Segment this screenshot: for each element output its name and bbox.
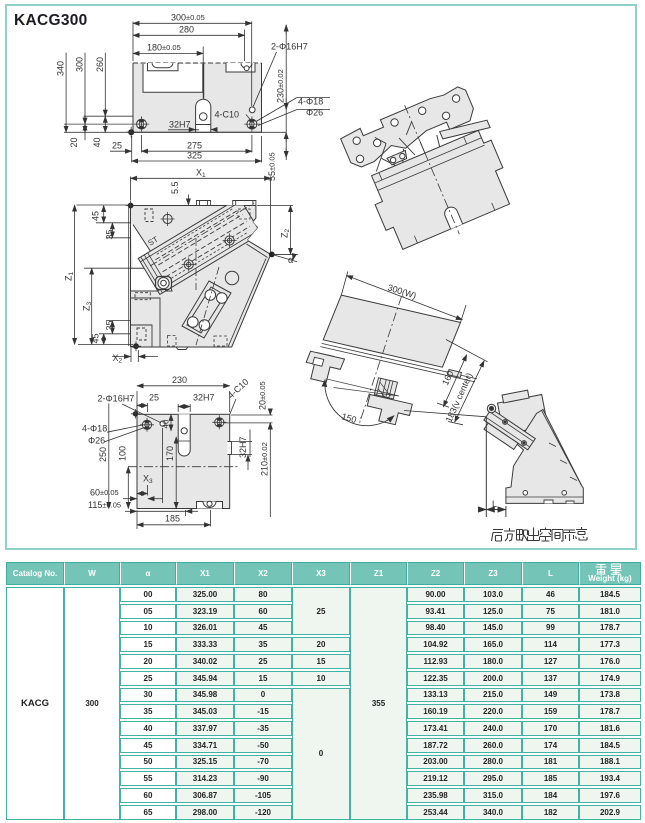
svg-text:5.5: 5.5: [170, 181, 180, 194]
svg-text:Z1: Z1: [64, 272, 76, 282]
svg-text:340: 340: [56, 61, 66, 76]
svg-text:170: 170: [165, 446, 175, 461]
svg-text:40: 40: [92, 137, 102, 147]
svg-text:300±0.05: 300±0.05: [171, 13, 205, 23]
svg-text:32H7: 32H7: [193, 393, 215, 403]
svg-text:325: 325: [187, 151, 202, 161]
svg-text:20: 20: [69, 137, 79, 147]
svg-text:35: 35: [105, 320, 115, 330]
svg-text:25: 25: [112, 141, 122, 151]
svg-text:185: 185: [165, 514, 180, 524]
svg-text:100: 100: [117, 446, 127, 461]
svg-text:4-Φ18: 4-Φ18: [298, 97, 323, 107]
svg-text:4-Φ18: 4-Φ18: [82, 424, 107, 434]
svg-text:Z3: Z3: [82, 302, 94, 312]
svg-text:X1: X1: [196, 168, 206, 180]
svg-text:230±0.02: 230±0.02: [276, 69, 286, 103]
svg-text:2-Φ16H7: 2-Φ16H7: [98, 394, 135, 404]
svg-text:L: L: [492, 499, 497, 509]
svg-text:4-C10: 4-C10: [226, 377, 251, 401]
svg-text:45: 45: [91, 333, 101, 343]
svg-text:180±0.05: 180±0.05: [147, 43, 181, 53]
svg-text:40: 40: [162, 419, 171, 428]
svg-text:300: 300: [75, 57, 85, 72]
svg-text:25: 25: [149, 393, 159, 403]
svg-text:32H7: 32H7: [238, 436, 248, 458]
svg-text:α: α: [288, 255, 293, 265]
svg-text:Z2: Z2: [280, 229, 292, 239]
svg-text:210±0.02: 210±0.02: [260, 442, 270, 476]
svg-text:2-Φ16H7: 2-Φ16H7: [271, 42, 308, 52]
svg-text:260: 260: [95, 57, 105, 72]
svg-text:X2: X2: [113, 353, 123, 365]
svg-text:20±0.05: 20±0.05: [258, 381, 268, 410]
svg-text:32H7: 32H7: [169, 120, 191, 130]
svg-text:55±0.05: 55±0.05: [267, 152, 277, 181]
svg-text:115±0.05: 115±0.05: [88, 500, 121, 510]
svg-text:280: 280: [179, 25, 194, 35]
svg-text:35: 35: [105, 229, 115, 239]
svg-text:Φ26: Φ26: [88, 436, 105, 446]
svg-text:Φ26: Φ26: [306, 108, 323, 118]
svg-text:60±0.05: 60±0.05: [90, 488, 119, 498]
svg-text:4-C10: 4-C10: [215, 110, 240, 120]
svg-text:250: 250: [98, 447, 108, 462]
svg-text:275: 275: [187, 141, 202, 151]
svg-text:45: 45: [91, 211, 101, 221]
svg-text:150 °: 150 °: [340, 411, 362, 426]
svg-text:230: 230: [172, 375, 187, 385]
svg-text:300(W): 300(W): [386, 282, 417, 300]
